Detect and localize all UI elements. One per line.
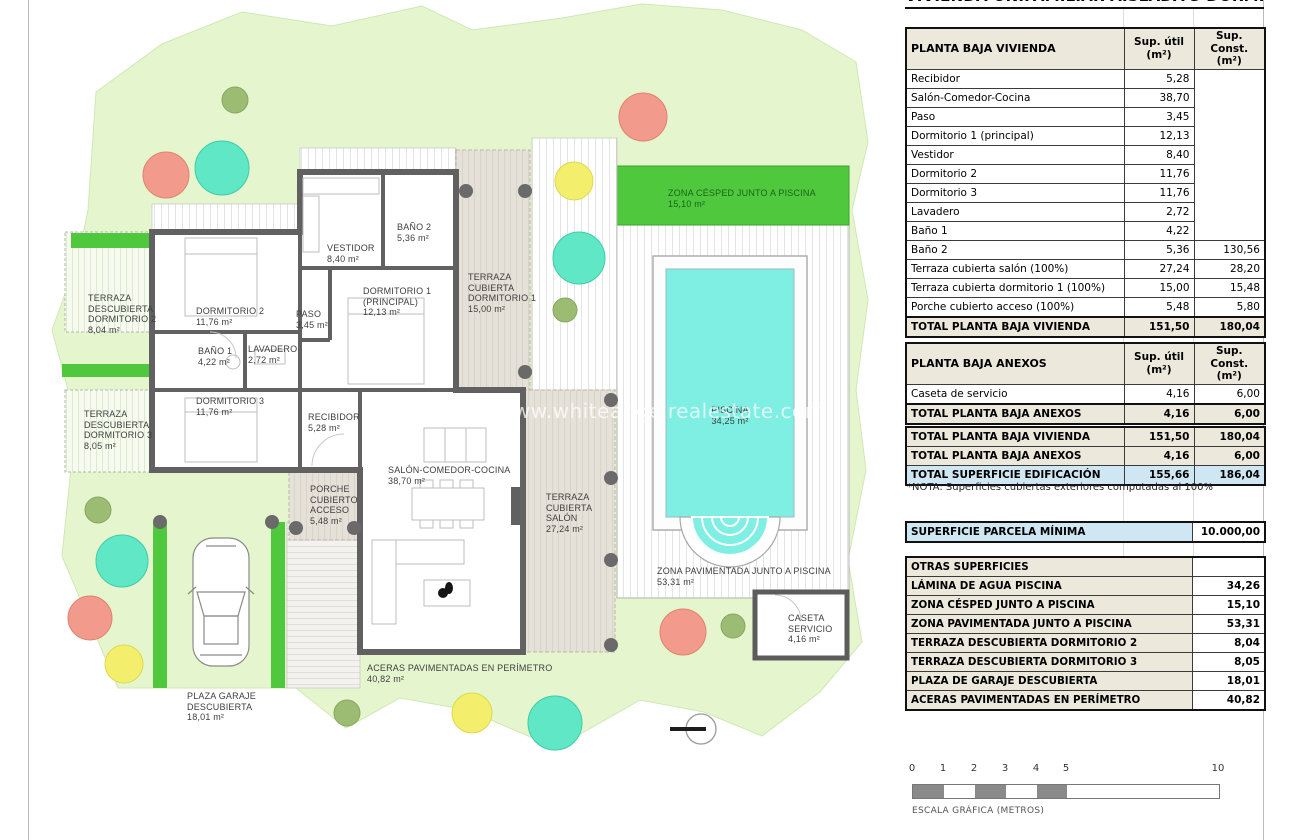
table-header-row: PLANTA BAJA VIVIENDA Sup. útil (m²) Sup.… <box>906 28 1265 69</box>
car-icon <box>188 538 254 666</box>
garage-strip <box>271 522 285 688</box>
table-row: ZONA CÉSPED JUNTO A PISCINA 15,10 <box>906 596 1265 615</box>
table-row: ZONA PAVIMENTADA JUNTO A PISCINA 53,31 <box>906 615 1265 634</box>
table-row: LÁMINA DE AGUA PISCINA 34,26 <box>906 577 1265 596</box>
room-label-terraza-cub-salon: TERRAZA CUBIERTA SALÓN27,24 m² <box>546 492 592 534</box>
tree-icon <box>721 614 745 638</box>
watermark: www.whiteangelrealestate.com <box>497 399 825 423</box>
tree-icon <box>553 232 605 284</box>
room-label-salon: SALÓN-COMEDOR-COCINA38,70 m² <box>388 465 511 486</box>
wall-pier <box>511 487 525 525</box>
table-total-row: TOTAL PLANTA BAJA ANEXOS 4,16 6,00 <box>906 404 1265 424</box>
zone-label-pavimentada: ZONA PAVIMENTADA JUNTO A PISCINA53,31 m² <box>657 566 831 587</box>
table-row: Salón-Comedor-Cocina 38,70 <box>906 88 1265 107</box>
architectural-plan-sheet: www.whiteangelrealestate.com TERRAZA DES… <box>0 0 1290 840</box>
table-title: PLANTA BAJA VIVIENDA <box>906 28 1124 69</box>
area-schedule-panel: VIVIENDA UNIFAMILIAR AISLADA 3 DORMITORI… <box>905 0 1264 840</box>
tree-icon <box>105 645 143 683</box>
planta-baja-vivienda-table: PLANTA BAJA VIVIENDA Sup. útil (m²) Sup.… <box>905 27 1266 338</box>
zone-label-aceras: ACERAS PAVIMENTADAS EN PERÍMETRO40,82 m² <box>367 663 552 684</box>
tree-icon <box>555 162 593 200</box>
scale-tick: 3 <box>1002 763 1008 774</box>
table-row: Paso 3,45 <box>906 107 1265 126</box>
planta-baja-anexos-table: PLANTA BAJA ANEXOS Sup. útil (m²) Sup. C… <box>905 342 1266 425</box>
room-label-paso: PASO3,45 m² <box>296 309 328 330</box>
scale-tick: 5 <box>1063 763 1069 774</box>
table-row: Lavadero 2,72 <box>906 202 1265 221</box>
table-row: TERRAZA DESCUBIERTA DORMITORIO 3 8,05 <box>906 653 1265 672</box>
room-label-recibidor: RECIBIDOR5,28 m² <box>308 412 360 433</box>
col-sup-const: Sup. Const. (m²) <box>1194 343 1265 384</box>
table-row: Terraza cubierta salón (100%) 27,24 28,2… <box>906 259 1265 278</box>
room-label-dormitorio3: DORMITORIO 311,76 m² <box>196 396 264 417</box>
scale-tick: 0 <box>909 763 915 774</box>
table-row: Caseta de servicio 4,16 6,00 <box>906 384 1265 404</box>
tree-icon <box>85 497 111 523</box>
room-label-dormitorio1: DORMITORIO 1 (PRINCIPAL)12,13 m² <box>363 286 431 318</box>
table-row: Dormitorio 3 11,76 <box>906 183 1265 202</box>
table-row: Baño 2 5,36 130,56 <box>906 240 1265 259</box>
table-row: Vestidor 8,40 <box>906 145 1265 164</box>
totals-summary-table: TOTAL PLANTA BAJA VIVIENDA 151,50 180,04… <box>905 426 1266 486</box>
table-row: PLAZA DE GARAJE DESCUBIERTA 18,01 <box>906 672 1265 691</box>
room-label-porche: PORCHE CUBIERTO ACCESO5,48 m² <box>310 484 358 526</box>
zone-label-caseta: CASETA SERVICIO4,16 m² <box>788 613 832 645</box>
room-label-bano2: BAÑO 25,36 m² <box>397 222 431 243</box>
garage-strip <box>153 522 167 688</box>
room-label-terraza-desc-dorm2: TERRAZA DESCUBIERTA DORMITORIO 28,04 m² <box>88 293 156 335</box>
summary-row: TOTAL PLANTA BAJA VIVIENDA 151,50 180,04 <box>906 427 1265 447</box>
sheet-title: VIVIENDA UNIFAMILIAR AISLADA 3 DORMITORI… <box>905 0 1264 9</box>
sheet-frame-left <box>28 0 29 840</box>
room-label-dormitorio2: DORMITORIO 211,76 m² <box>196 306 264 327</box>
col-sup-util: Sup. útil (m²) <box>1124 28 1194 69</box>
table-title: PLANTA BAJA ANEXOS <box>906 343 1124 384</box>
room-label-vestidor: VESTIDOR8,40 m² <box>327 243 375 264</box>
tree-icon <box>195 141 249 195</box>
tree-icon <box>553 298 577 322</box>
tree-icon <box>452 693 492 733</box>
table-row: TERRAZA DESCUBIERTA DORMITORIO 2 8,04 <box>906 634 1265 653</box>
footnote: *NOTA: Superficies cubiertas exteriores … <box>907 482 1213 493</box>
table-row: ACERAS PAVIMENTADAS EN PERÍMETRO 40,82 <box>906 691 1265 711</box>
tree-icon <box>96 535 148 587</box>
tree-icon <box>334 700 360 726</box>
parcela-row: SUPERFICIE PARCELA MÍNIMA 10.000,00 <box>906 522 1265 542</box>
otras-superficies-table: OTRAS SUPERFICIES LÁMINA DE AGUA PISCINA… <box>905 556 1266 711</box>
zone-label-garaje: PLAZA GARAJE DESCUBIERTA18,01 m² <box>187 691 256 723</box>
planter-bar <box>62 364 154 377</box>
table-header-row: OTRAS SUPERFICIES <box>906 557 1265 577</box>
scale-bar-label: ESCALA GRÁFICA (METROS) <box>912 806 1044 816</box>
table-row: Porche cubierto acceso (100%) 5,48 5,80 <box>906 297 1265 317</box>
sidewalk-hatch <box>300 148 456 172</box>
scale-tick: 1 <box>940 763 946 774</box>
table-row: Dormitorio 1 (principal) 12,13 <box>906 126 1265 145</box>
table-header-row: PLANTA BAJA ANEXOS Sup. útil (m²) Sup. C… <box>906 343 1265 384</box>
table-total-row: TOTAL PLANTA BAJA VIVIENDA 151,50 180,04 <box>906 317 1265 337</box>
room-label-terraza-cub-dorm1: TERRAZA CUBIERTA DORMITORIO 115,00 m² <box>468 272 536 314</box>
zone-label-cesped: ZONA CÉSPED JUNTO A PISCINA15,10 m² <box>668 188 816 209</box>
table-row: Recibidor 5,28 <box>906 69 1265 88</box>
tree-icon <box>68 596 112 640</box>
table-row: Baño 1 4,22 <box>906 221 1265 240</box>
sidewalk-hatch <box>152 204 300 232</box>
tree-icon <box>528 696 582 750</box>
col-sup-const: Sup. Const. (m²) <box>1194 28 1265 69</box>
compass-icon <box>670 714 716 744</box>
table-row: Dormitorio 2 11,76 <box>906 164 1265 183</box>
planter-bar <box>71 233 153 248</box>
col-sup-util: Sup. útil (m²) <box>1124 343 1194 384</box>
scale-tick: 10 <box>1212 763 1225 774</box>
parcela-minima-table: SUPERFICIE PARCELA MÍNIMA 10.000,00 <box>905 521 1266 543</box>
tree-icon <box>619 93 667 141</box>
room-label-bano1: BAÑO 14,22 m² <box>198 346 232 367</box>
table-row: Terraza cubierta dormitorio 1 (100%) 15,… <box>906 278 1265 297</box>
tree-icon <box>143 152 189 198</box>
pool-water <box>666 269 794 517</box>
scale-bar-track <box>912 784 1220 799</box>
room-label-terraza-desc-dorm3: TERRAZA DESCUBIERTA DORMITORIO 38,05 m² <box>84 409 152 451</box>
summary-row: TOTAL PLANTA BAJA ANEXOS 4,16 6,00 <box>906 447 1265 466</box>
tree-icon <box>660 609 706 655</box>
scale-tick: 2 <box>971 763 977 774</box>
sidewalk-hatch <box>287 522 360 688</box>
room-label-lavadero: LAVADERO2,72 m² <box>248 344 297 365</box>
tree-icon <box>222 87 248 113</box>
scale-tick: 4 <box>1033 763 1039 774</box>
